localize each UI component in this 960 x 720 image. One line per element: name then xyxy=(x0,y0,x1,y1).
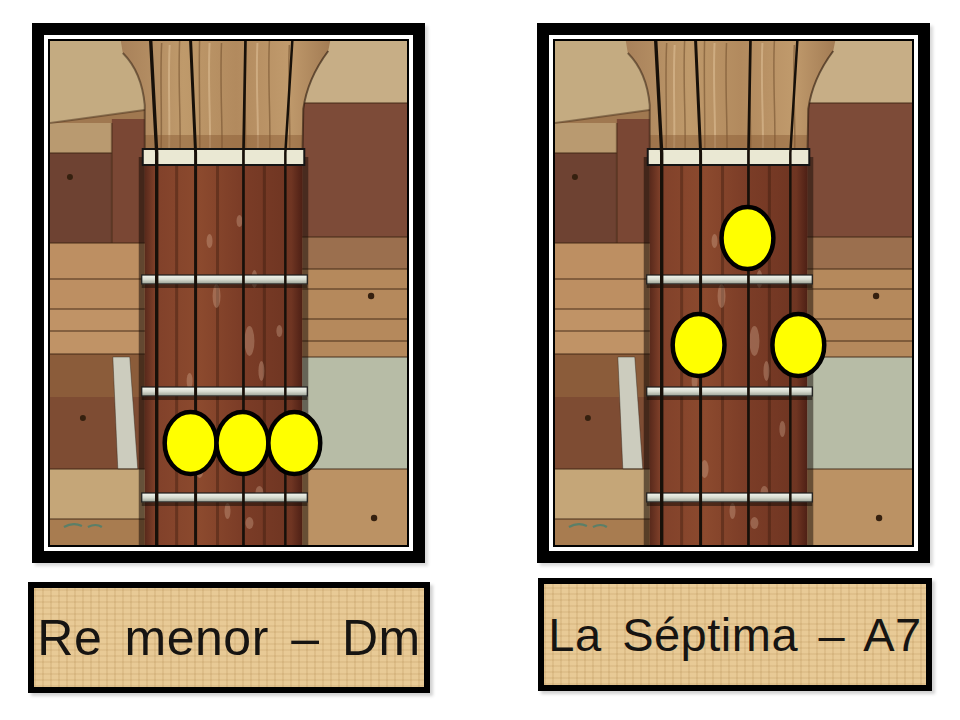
finger-dot-string-2-space-3 xyxy=(165,412,217,474)
finger-dots-dm xyxy=(165,412,321,474)
fretboard-photo-a7 xyxy=(555,41,912,545)
chord-label-a7: La Séptima – A7 xyxy=(538,578,932,691)
chord-label-dm: Re menor – Dm xyxy=(28,582,430,693)
photo-inner-border xyxy=(553,39,914,547)
fretboard-photo-frame-dm xyxy=(32,23,425,563)
fretboard-photo-frame-a7 xyxy=(537,23,930,563)
chord-label-text-a7: La Séptima – A7 xyxy=(548,607,921,662)
finger-dot-string-2-space-2 xyxy=(673,314,725,376)
finger-dot-string-4-space-2 xyxy=(772,314,824,376)
finger-dot-string-4-space-3 xyxy=(268,412,320,474)
fretboard-photo-dm xyxy=(50,41,407,545)
photo-inner-border xyxy=(48,39,409,547)
finger-dot-string-3-space-3 xyxy=(217,412,269,474)
chord-label-text-dm: Re menor – Dm xyxy=(37,609,420,667)
finger-dot-string-3-space-1 xyxy=(722,207,774,269)
